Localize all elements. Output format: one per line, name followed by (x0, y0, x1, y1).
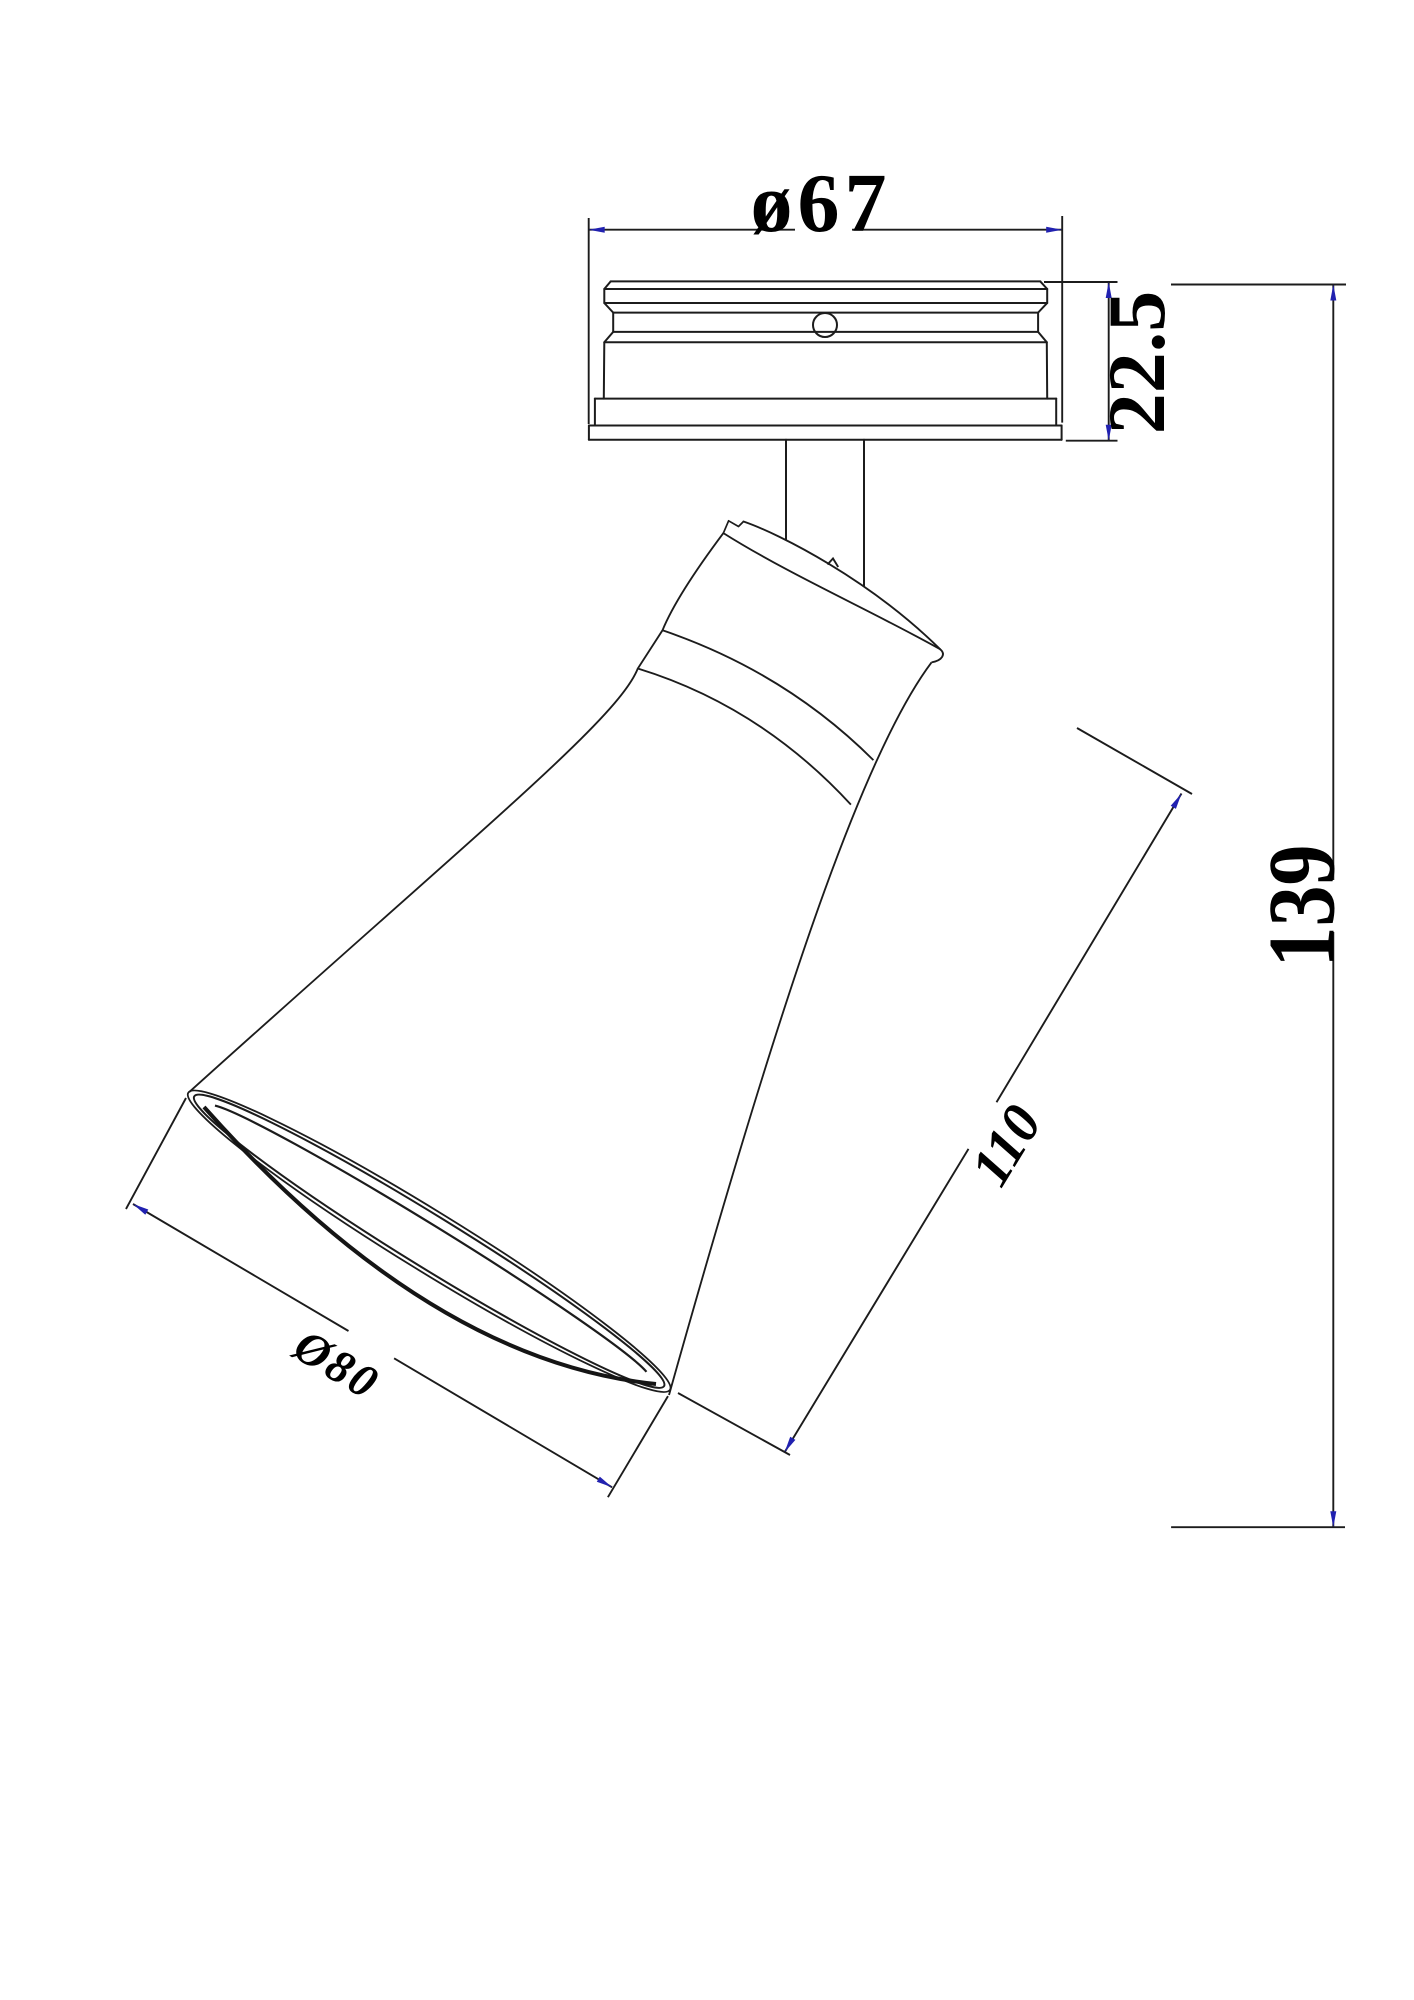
svg-text:139: 139 (1250, 845, 1355, 968)
svg-text:ø67: ø67 (751, 157, 892, 250)
svg-text:22.5: 22.5 (1091, 291, 1182, 435)
